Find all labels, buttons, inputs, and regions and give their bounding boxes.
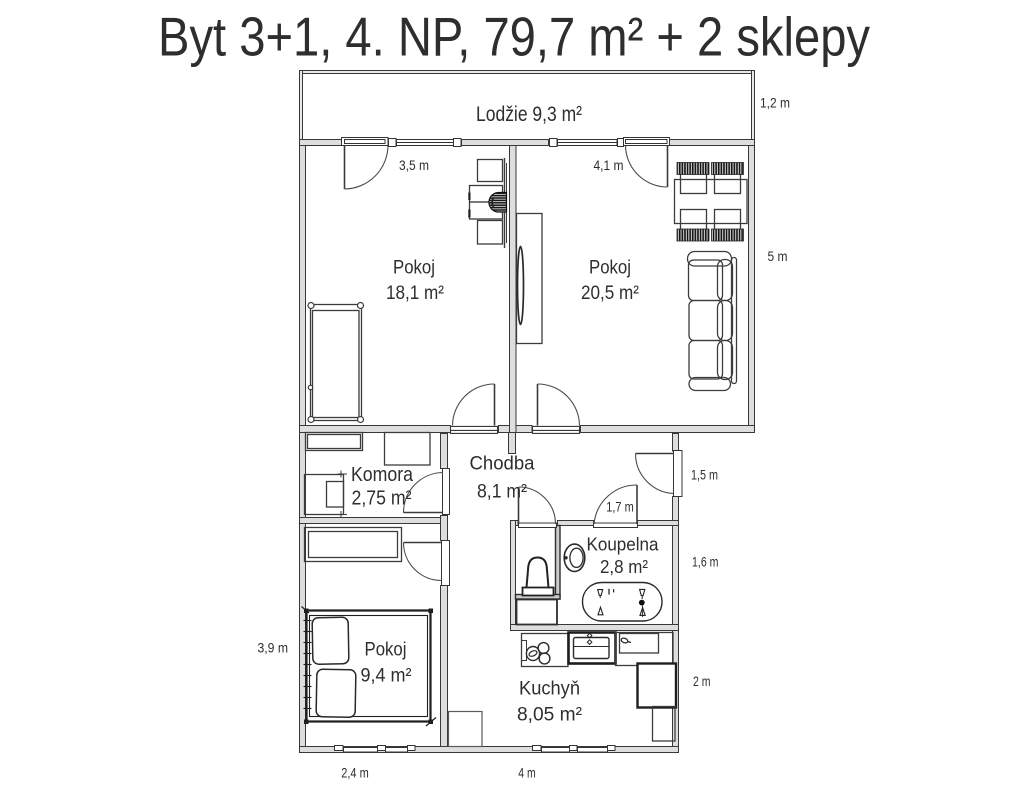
svg-text:20,5 m²: 20,5 m² — [581, 282, 639, 304]
svg-text:3,9 m: 3,9 m — [258, 641, 289, 656]
svg-text:1,2 m: 1,2 m — [760, 96, 790, 111]
svg-text:1,7 m: 1,7 m — [606, 500, 634, 515]
svg-text:2,75 m²: 2,75 m² — [352, 488, 412, 510]
svg-text:Chodba: Chodba — [470, 453, 535, 475]
svg-text:2,8 m²: 2,8 m² — [600, 556, 648, 577]
svg-text:4 m: 4 m — [518, 766, 536, 781]
svg-text:8,1 m²: 8,1 m² — [477, 481, 527, 503]
svg-text:Komora: Komora — [351, 464, 414, 486]
svg-text:2 m: 2 m — [693, 674, 711, 689]
svg-text:2,4 m: 2,4 m — [341, 766, 369, 781]
svg-text:3,5 m: 3,5 m — [399, 158, 429, 173]
svg-text:Lodžie 9,3 m²: Lodžie 9,3 m² — [476, 102, 582, 126]
svg-text:4,1 m: 4,1 m — [594, 158, 624, 173]
svg-text:18,1 m²: 18,1 m² — [386, 282, 444, 304]
svg-text:8,05 m²: 8,05 m² — [517, 704, 582, 726]
svg-text:Koupelna: Koupelna — [587, 534, 660, 555]
svg-text:1,6 m: 1,6 m — [692, 555, 719, 570]
svg-text:Pokoj: Pokoj — [589, 257, 631, 279]
svg-text:1,5 m: 1,5 m — [691, 468, 718, 483]
svg-text:Pokoj: Pokoj — [393, 257, 435, 279]
svg-text:Pokoj: Pokoj — [365, 639, 407, 661]
svg-text:9,4 m²: 9,4 m² — [361, 665, 412, 687]
svg-text:Kuchyň: Kuchyň — [519, 678, 580, 700]
svg-text:Byt 3+1, 4. NP, 79,7 m² + 2 sk: Byt 3+1, 4. NP, 79,7 m² + 2 sklepy — [158, 6, 870, 68]
svg-text:5 m: 5 m — [768, 249, 788, 264]
